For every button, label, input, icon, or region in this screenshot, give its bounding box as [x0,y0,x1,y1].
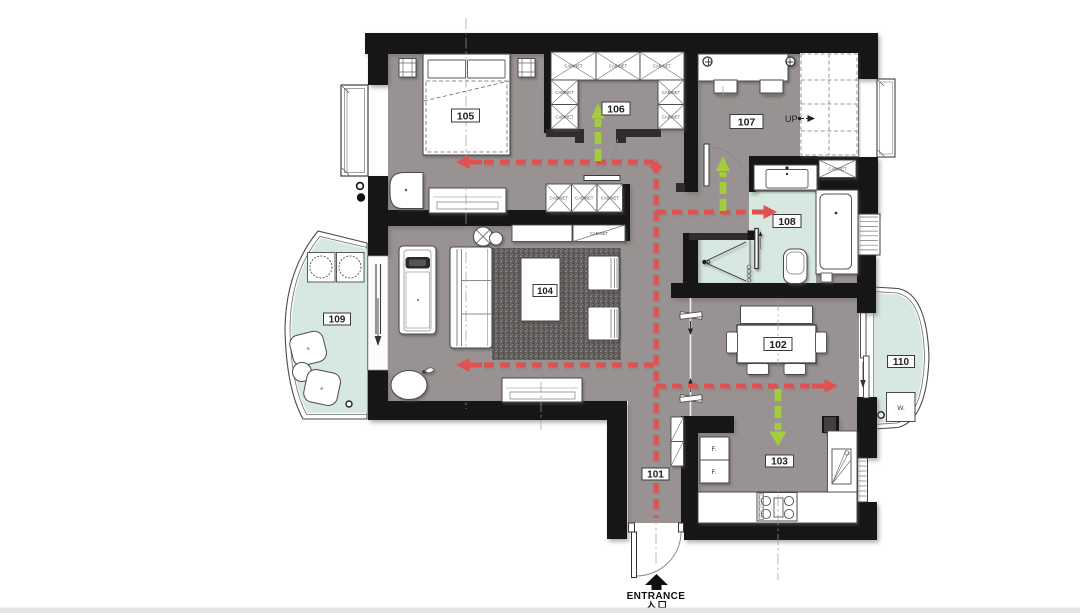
svg-text:CABINET: CABINET [555,90,574,95]
svg-text:W.: W. [897,405,905,412]
svg-text:CABINET: CABINET [575,196,594,201]
svg-text:CABINET: CABINET [653,64,672,69]
svg-text:101: 101 [647,470,664,481]
svg-text:103: 103 [771,457,788,468]
svg-text:106: 106 [607,103,625,115]
svg-text:102: 102 [769,339,787,351]
svg-text:CABINET: CABINET [662,90,681,95]
svg-text:CABINET: CABINET [601,196,620,201]
svg-text:CABINET: CABINET [609,64,628,69]
svg-text:105: 105 [457,110,475,122]
svg-text:CABINET: CABINET [564,64,583,69]
svg-text:CABINET: CABINET [828,166,847,171]
svg-text:CABINET: CABINET [555,114,574,119]
svg-text:107: 107 [738,116,756,128]
svg-text:F.: F. [711,446,716,453]
svg-text:CABINET: CABINET [662,114,681,119]
svg-text:108: 108 [778,216,796,228]
svg-text:UP: UP [785,114,798,124]
svg-text:110: 110 [893,357,910,368]
svg-text:CABINET: CABINET [590,231,609,236]
svg-text:CABINET: CABINET [550,196,569,201]
svg-text:109: 109 [329,315,346,326]
svg-text:F.: F. [711,469,716,476]
svg-text:ENTRANCE: ENTRANCE [627,591,686,602]
svg-text:104: 104 [537,286,554,297]
